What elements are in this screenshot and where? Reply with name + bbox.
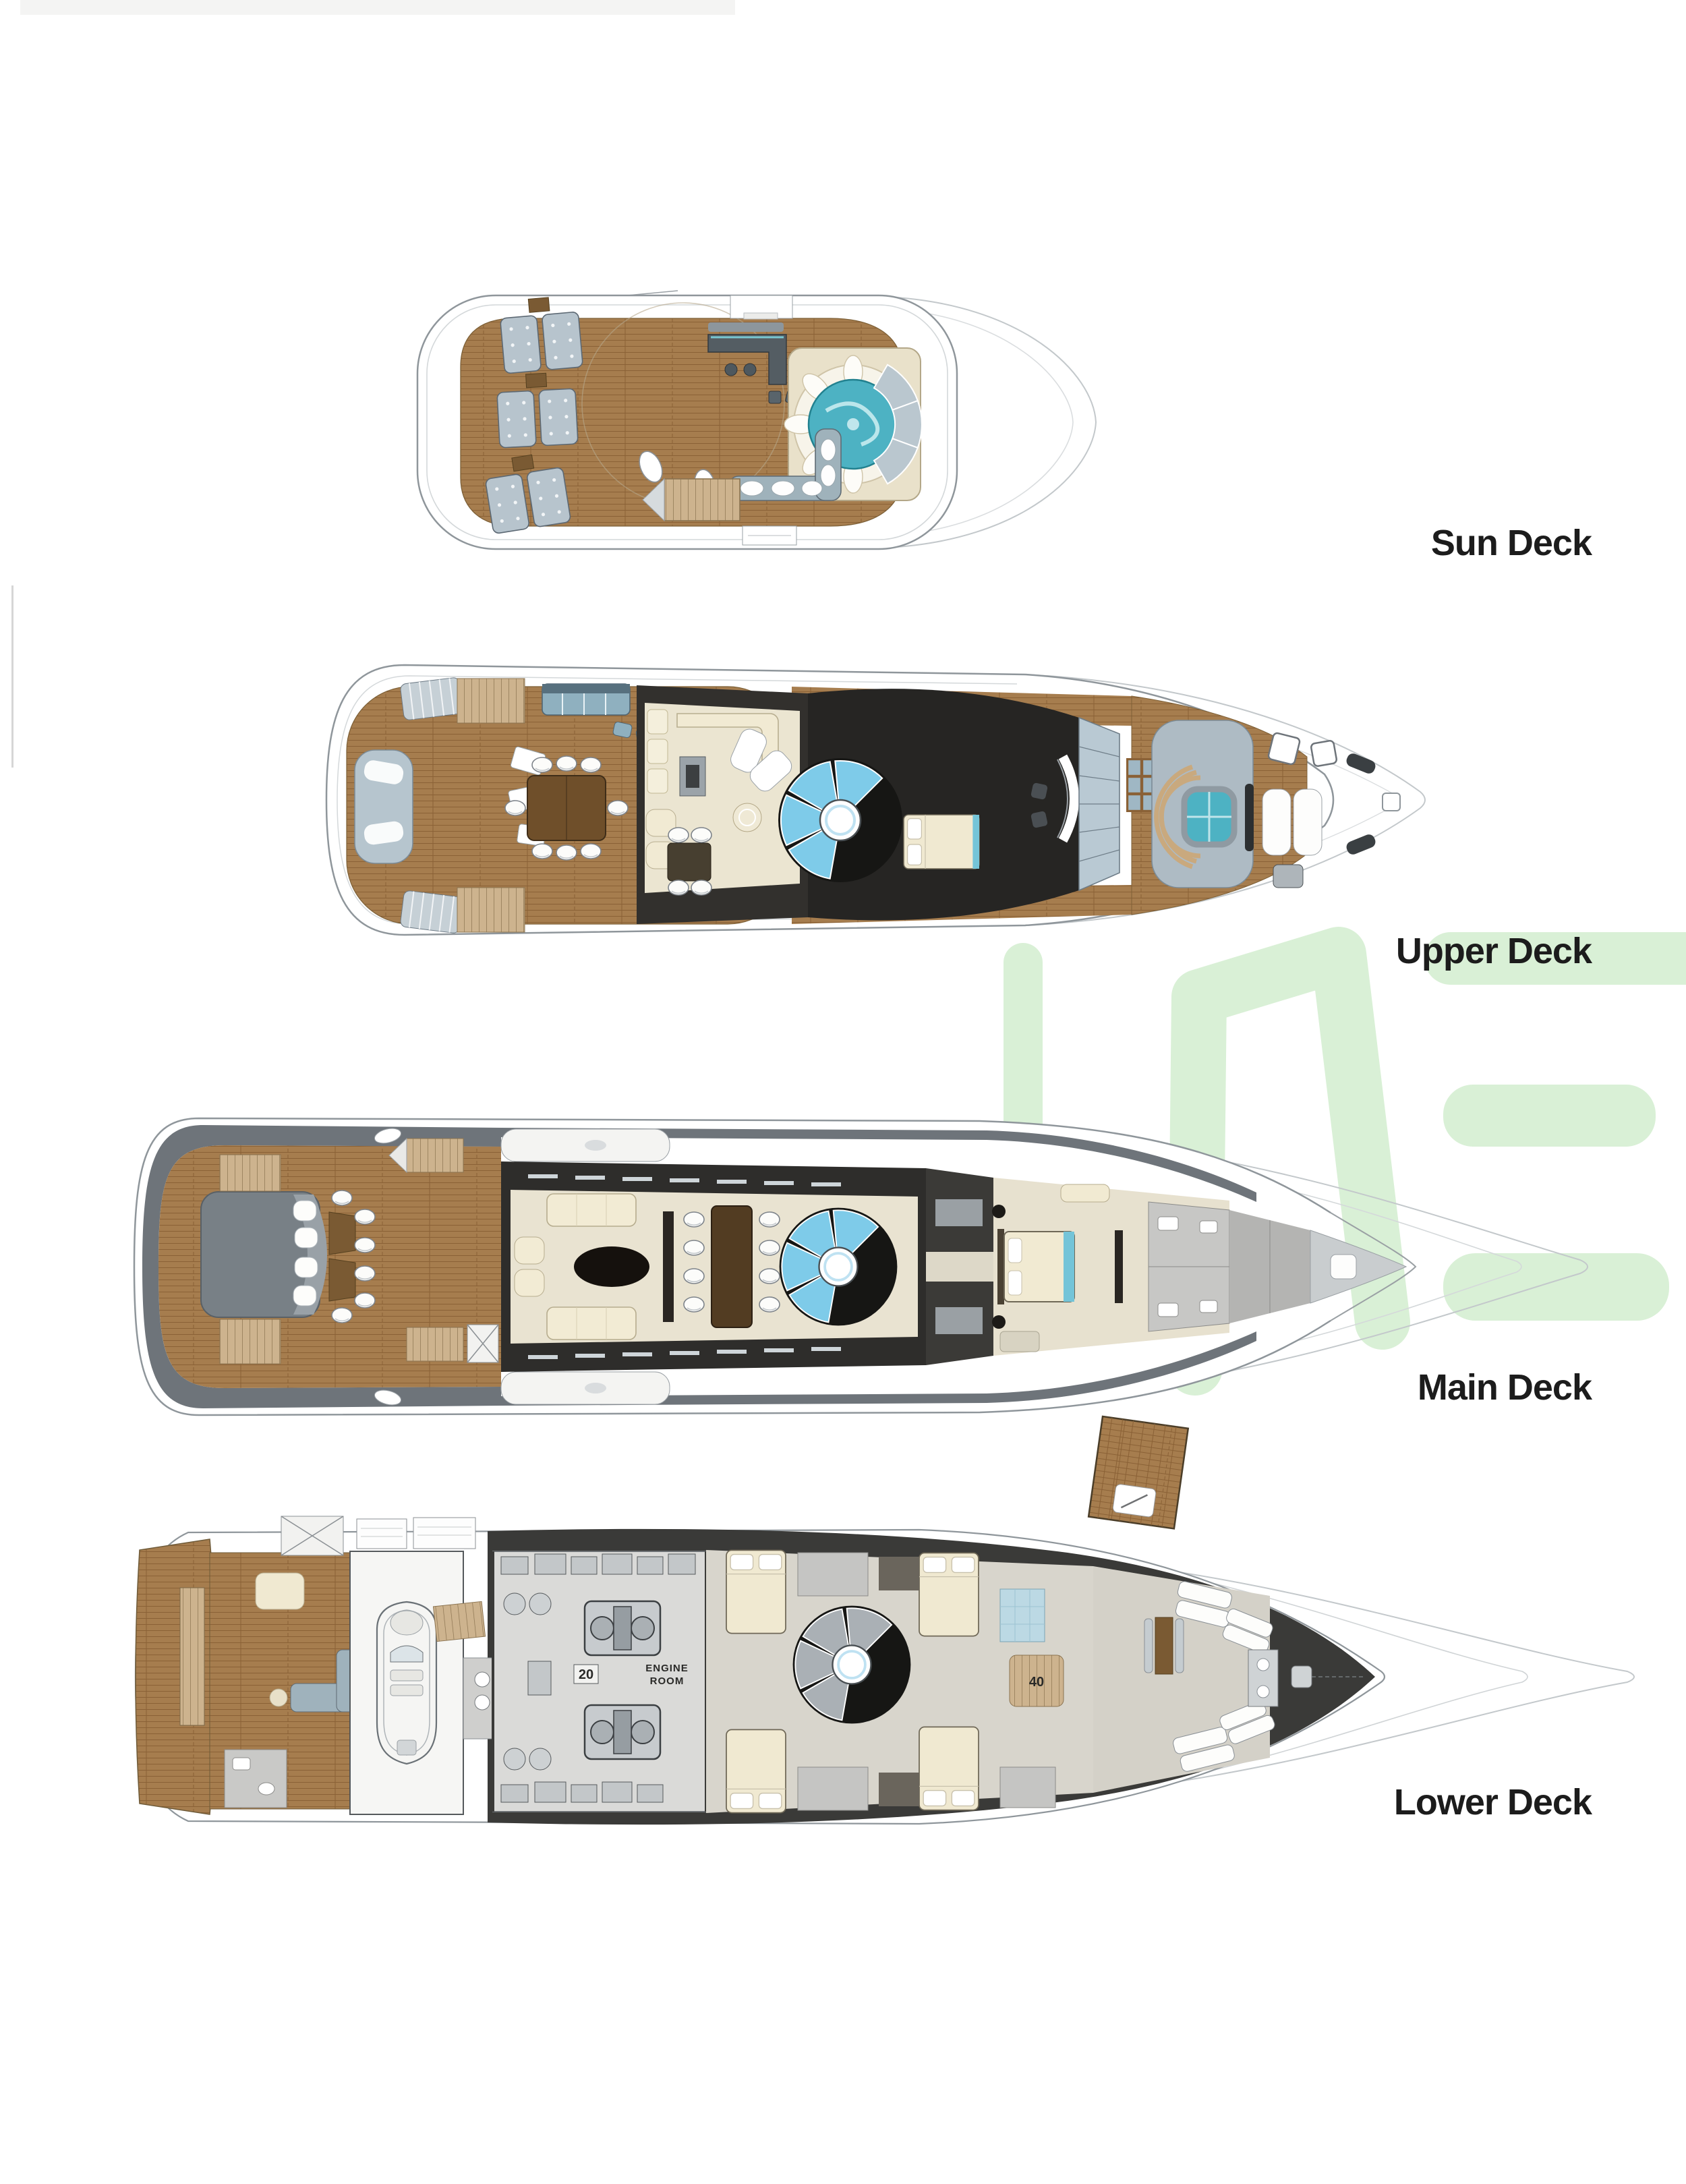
salon-rug xyxy=(574,1246,649,1287)
yacht-deck-plans-page: 20 ENGINE ROOM xyxy=(0,0,1686,2184)
salon-dining-table xyxy=(711,1206,752,1327)
lower-deck-label: Lower Deck xyxy=(1275,1784,1592,1820)
sun-deck-plan xyxy=(413,286,1115,559)
bow-spa-pool xyxy=(1152,720,1253,888)
galley xyxy=(926,1168,993,1365)
lower-aft-stairs xyxy=(433,1601,485,1641)
lower-stair-number: 40 xyxy=(1029,1675,1044,1690)
engine-room-label-2: ROOM xyxy=(650,1675,685,1687)
windshield xyxy=(1079,718,1120,890)
captain-cabin-bed xyxy=(904,815,979,869)
engine-room-number: 20 xyxy=(579,1667,593,1682)
upper-deck-label: Upper Deck xyxy=(1275,933,1592,969)
scan-artifact-line xyxy=(11,585,13,768)
stbd-engine xyxy=(585,1705,660,1759)
upper-aft-lounger xyxy=(355,750,413,863)
bow-deck xyxy=(1310,1230,1406,1303)
spiral-staircase-lower xyxy=(793,1606,911,1724)
upper-deck-plan xyxy=(316,656,1455,952)
main-deck-plan xyxy=(123,1098,1641,1520)
main-deck-label: Main Deck xyxy=(1275,1369,1592,1406)
spiral-staircase-main xyxy=(780,1208,898,1326)
main-aft-lounge xyxy=(201,1192,327,1317)
crew-quarters xyxy=(1093,1566,1278,1793)
tender-boat xyxy=(377,1602,436,1764)
scan-artifact-top xyxy=(20,0,735,15)
engine-room: 20 ENGINE ROOM xyxy=(493,1551,706,1812)
tender-garage xyxy=(350,1551,463,1814)
owner-bed xyxy=(997,1229,1074,1304)
sun-deck-label: Sun Deck xyxy=(1275,525,1592,561)
port-engine xyxy=(585,1601,660,1655)
lower-mid-stairs: 40 xyxy=(1010,1655,1064,1706)
spiral-staircase-upper xyxy=(778,758,902,882)
engine-room-label-1: ENGINE xyxy=(645,1663,689,1674)
